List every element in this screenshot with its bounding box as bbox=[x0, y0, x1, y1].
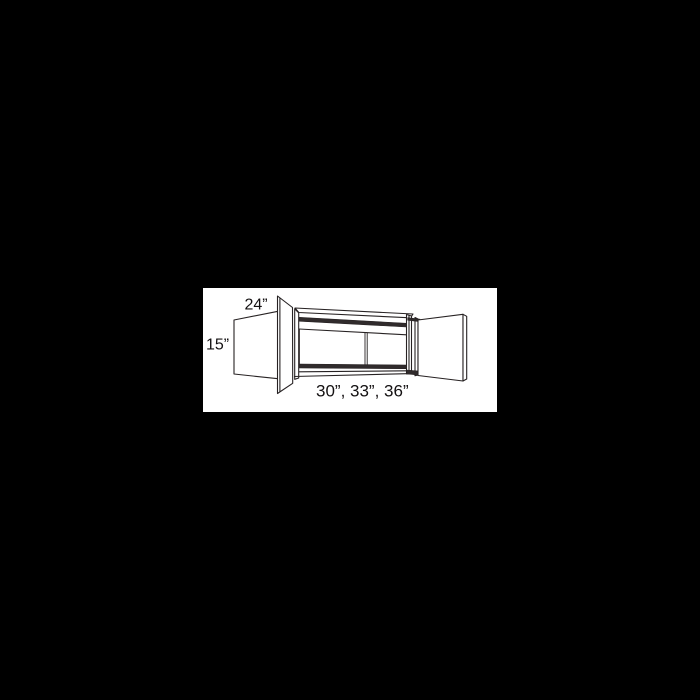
interior-ceiling-line bbox=[299, 329, 407, 335]
cabinet-bottom-shelf-dark bbox=[299, 364, 407, 369]
width-options-label: 30”, 33”, 36” bbox=[316, 382, 409, 401]
cabinet-top-rail-dark bbox=[299, 317, 407, 327]
right-door-edge-face bbox=[463, 314, 467, 381]
right-hinge-step-bottom-dark bbox=[407, 370, 419, 375]
cabinet-left-stile bbox=[295, 309, 299, 380]
depth-dimension-label: 24” bbox=[245, 297, 268, 314]
cabinet-bottom-front-edge bbox=[299, 371, 407, 372]
height-dimension-label: 15” bbox=[206, 337, 229, 354]
black-background: 24” 15” 30”, 33”, 36” bbox=[0, 0, 700, 700]
right-door bbox=[418, 314, 463, 381]
cabinet-bottom-outer-edge bbox=[294, 374, 412, 377]
cabinet-diagram-panel: 24” 15” 30”, 33”, 36” bbox=[203, 288, 497, 412]
cabinet-top-face bbox=[295, 308, 413, 318]
cabinet-left-side-panel bbox=[234, 311, 278, 378]
center-divider bbox=[365, 333, 367, 367]
cabinet-line-drawing: 24” 15” 30”, 33”, 36” bbox=[203, 288, 497, 412]
